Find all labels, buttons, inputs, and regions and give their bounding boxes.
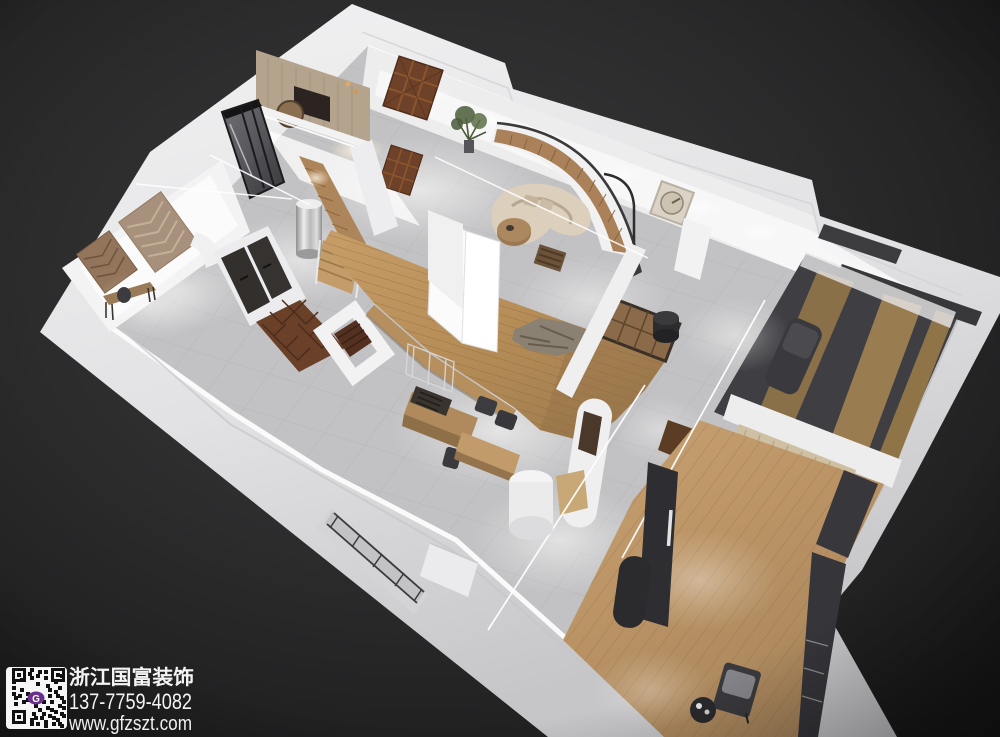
svg-text:137-7759-4082: 137-7759-4082 (69, 689, 192, 714)
svg-text:浙江国富装饰: 浙江国富装饰 (69, 665, 194, 689)
svg-text:G: G (32, 694, 40, 705)
svg-text:www.gfzszt.com: www.gfzszt.com (68, 713, 192, 735)
